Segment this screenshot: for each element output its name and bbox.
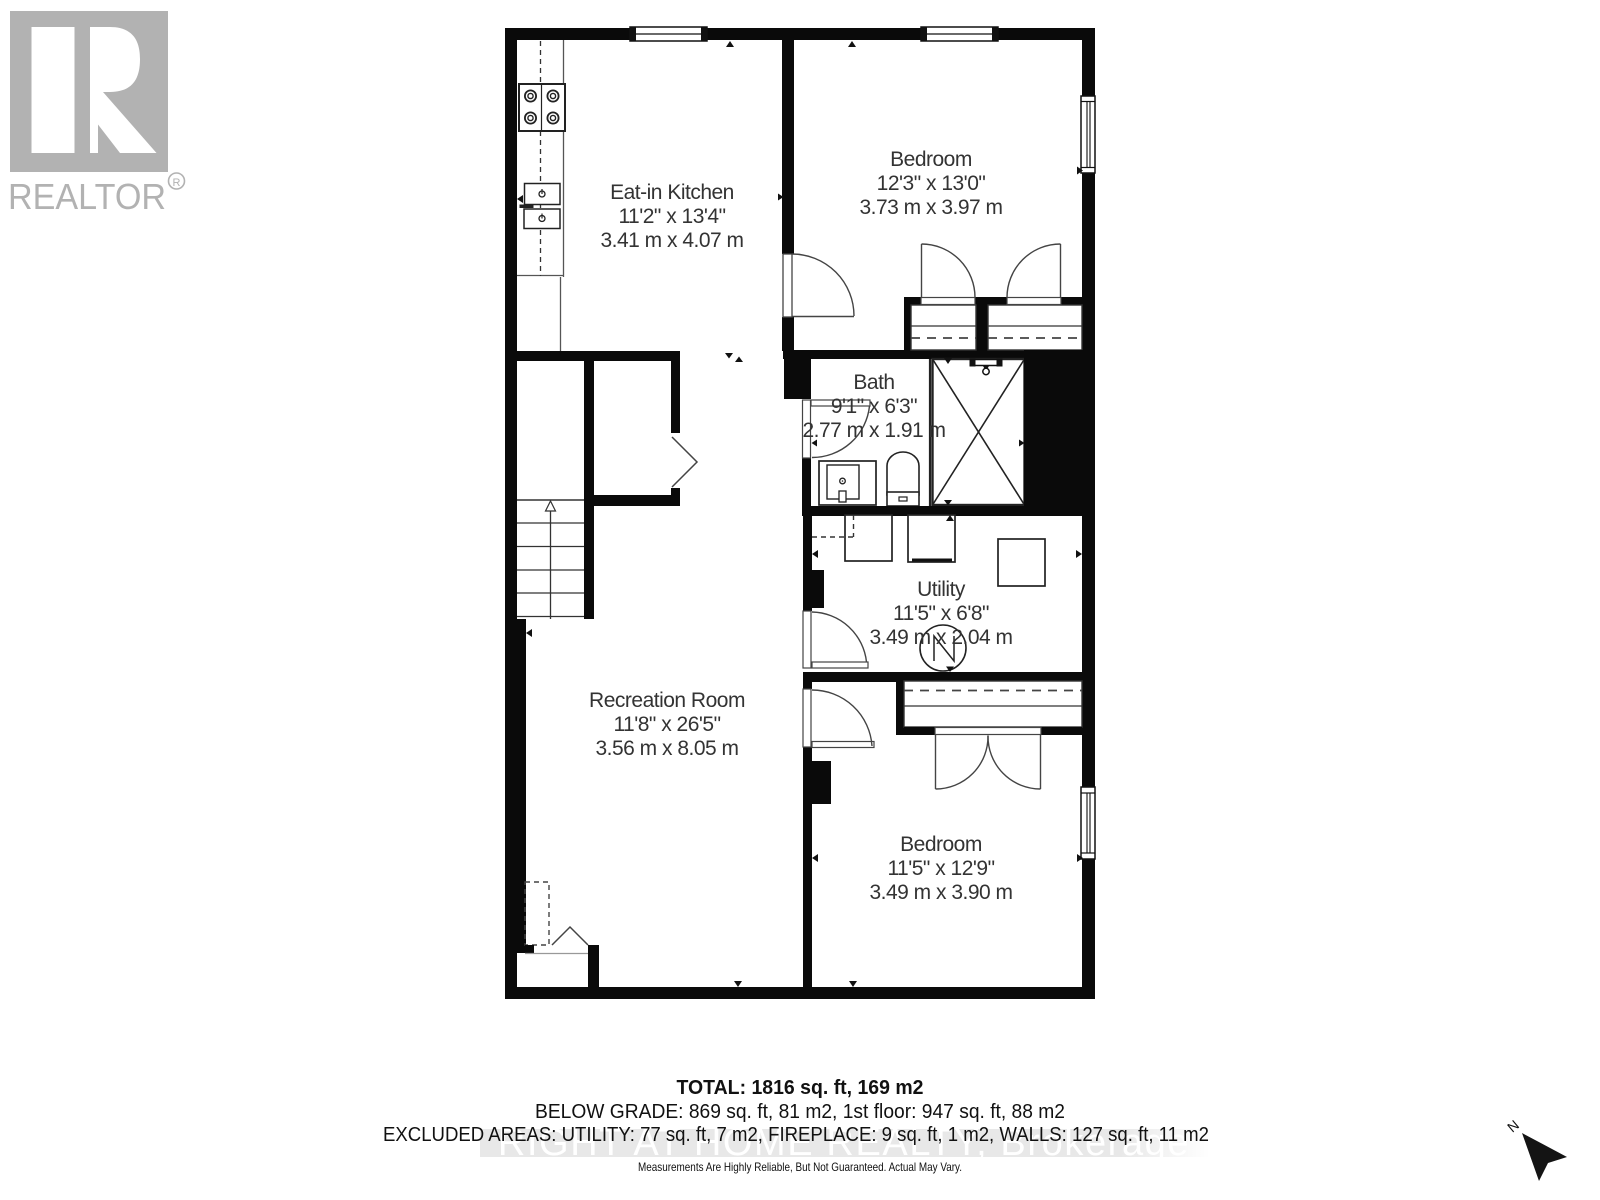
svg-text:11'5" x 12'9": 11'5" x 12'9" <box>887 857 994 880</box>
svg-text:9'1" x 6'3": 9'1" x 6'3" <box>831 395 917 418</box>
svg-text:BELOW GRADE: 869 sq. ft, 81 m2: BELOW GRADE: 869 sq. ft, 81 m2, 1st floo… <box>535 1100 1065 1123</box>
svg-text:2.77 m x 1.91 m: 2.77 m x 1.91 m <box>802 419 945 442</box>
svg-text:3.49 m x 3.90 m: 3.49 m x 3.90 m <box>869 881 1012 904</box>
svg-text:Bedroom: Bedroom <box>900 833 982 856</box>
svg-text:3.41 m x 4.07 m: 3.41 m x 4.07 m <box>600 229 743 252</box>
svg-text:Utility: Utility <box>917 578 966 601</box>
svg-text:11'2" x 13'4": 11'2" x 13'4" <box>618 205 725 228</box>
svg-text:Bath: Bath <box>853 371 894 394</box>
svg-text:Measurements Are Highly Reliab: Measurements Are Highly Reliable, But No… <box>638 1160 962 1174</box>
svg-text:11'8" x 26'5": 11'8" x 26'5" <box>613 713 720 736</box>
svg-text:REALTOR: REALTOR <box>8 176 166 217</box>
svg-text:11'5" x 6'8": 11'5" x 6'8" <box>893 602 989 625</box>
svg-text:TOTAL: 1816 sq. ft, 169 m2: TOTAL: 1816 sq. ft, 169 m2 <box>677 1076 924 1099</box>
svg-text:Recreation Room: Recreation Room <box>589 689 745 712</box>
svg-text:3.73 m x 3.97 m: 3.73 m x 3.97 m <box>859 196 1002 219</box>
svg-text:3.49 m x 2.04 m: 3.49 m x 2.04 m <box>869 626 1012 649</box>
svg-text:R: R <box>173 177 181 189</box>
svg-text:3.56 m x 8.05 m: 3.56 m x 8.05 m <box>595 737 738 760</box>
svg-text:Eat-in Kitchen: Eat-in Kitchen <box>610 181 734 204</box>
svg-text:EXCLUDED AREAS: UTILITY: 77 sq: EXCLUDED AREAS: UTILITY: 77 sq. ft, 7 m2… <box>383 1123 1209 1146</box>
svg-text:12'3" x 13'0": 12'3" x 13'0" <box>877 172 986 195</box>
svg-text:Bedroom: Bedroom <box>890 148 972 171</box>
